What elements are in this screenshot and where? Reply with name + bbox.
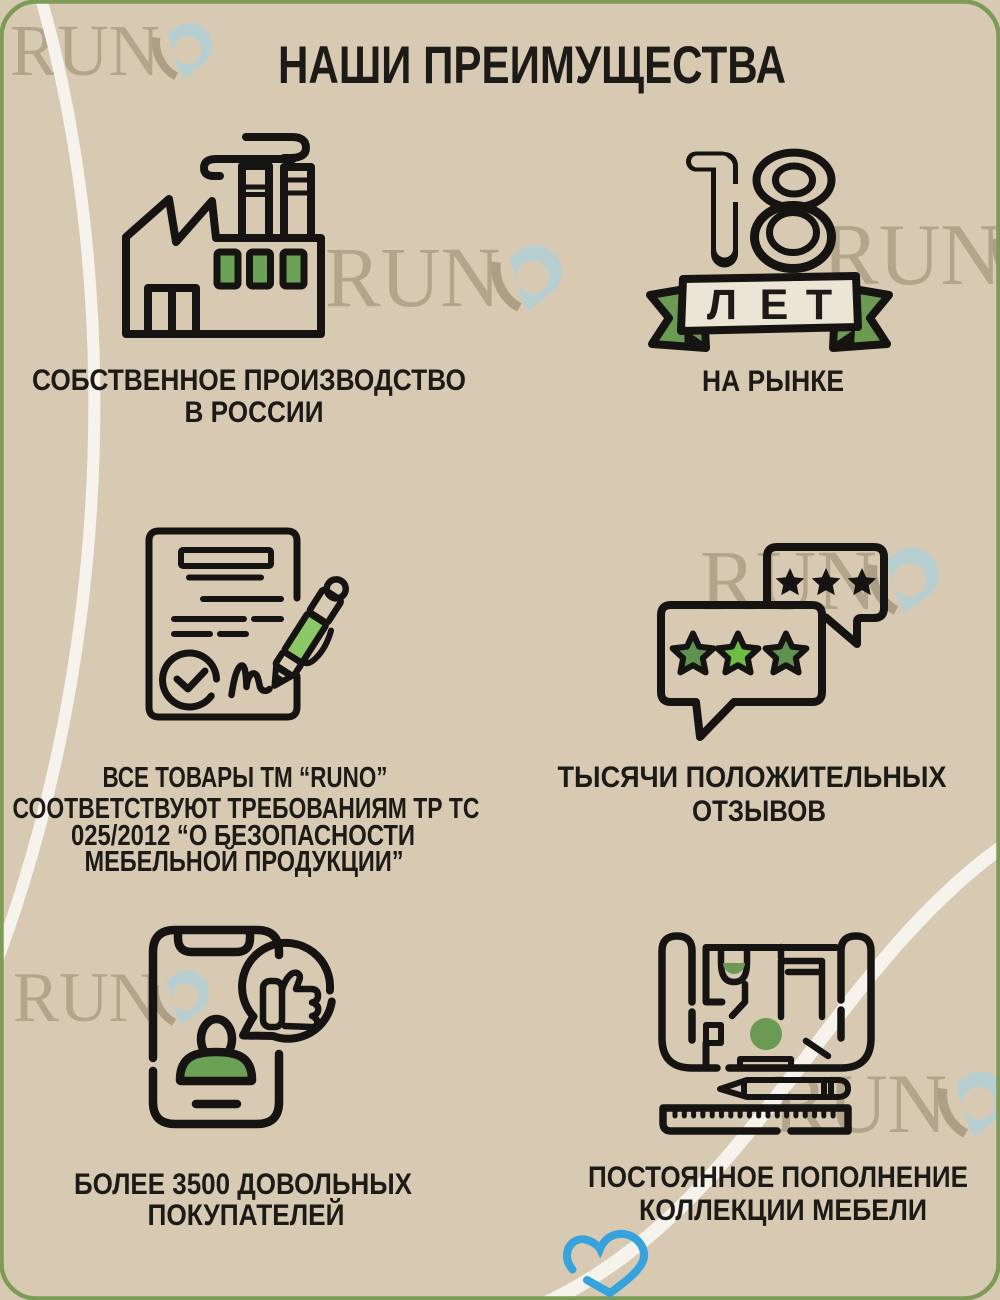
svg-text:В РОССИИ: В РОССИИ	[185, 396, 324, 429]
svg-text:БОЛЕЕ 3500 ДОВОЛЬНЫХ: БОЛЕЕ 3500 ДОВОЛЬНЫХ	[74, 1168, 412, 1201]
svg-text:Л: Л	[707, 281, 737, 329]
svg-text:СОБСТВЕННОЕ ПРОИЗВОДСТВО: СОБСТВЕННОЕ ПРОИЗВОДСТВО	[32, 364, 466, 397]
svg-text:КОЛЛЕКЦИИ МЕБЕЛИ: КОЛЛЕКЦИИ МЕБЕЛИ	[639, 1194, 927, 1227]
svg-text:Е: Е	[760, 281, 789, 329]
svg-text:ПОКУПАТЕЛЕЙ: ПОКУПАТЕЛЕЙ	[148, 1198, 345, 1232]
svg-text:НА РЫНКЕ: НА РЫНКЕ	[702, 365, 844, 398]
svg-text:НАШИ ПРЕИМУЩЕСТВА: НАШИ ПРЕИМУЩЕСТВА	[278, 36, 786, 95]
svg-text:ОТЗЫВОВ: ОТЗЫВОВ	[692, 795, 826, 828]
svg-text:МЕБЕЛЬНОЙ ПРОДУКЦИИ”: МЕБЕЛЬНОЙ ПРОДУКЦИИ”	[85, 844, 404, 878]
svg-text:ВСЕ ТОВАРЫ ТМ “RUNO”: ВСЕ ТОВАРЫ ТМ “RUNO”	[103, 762, 388, 794]
svg-text:ТЫСЯЧИ ПОЛОЖИТЕЛЬНЫХ: ТЫСЯЧИ ПОЛОЖИТЕЛЬНЫХ	[558, 761, 947, 794]
svg-text:Т: Т	[806, 281, 832, 329]
svg-text:ПОСТОЯННОЕ ПОПОЛНЕНИЕ: ПОСТОЯННОЕ ПОПОЛНЕНИЕ	[588, 1161, 968, 1194]
